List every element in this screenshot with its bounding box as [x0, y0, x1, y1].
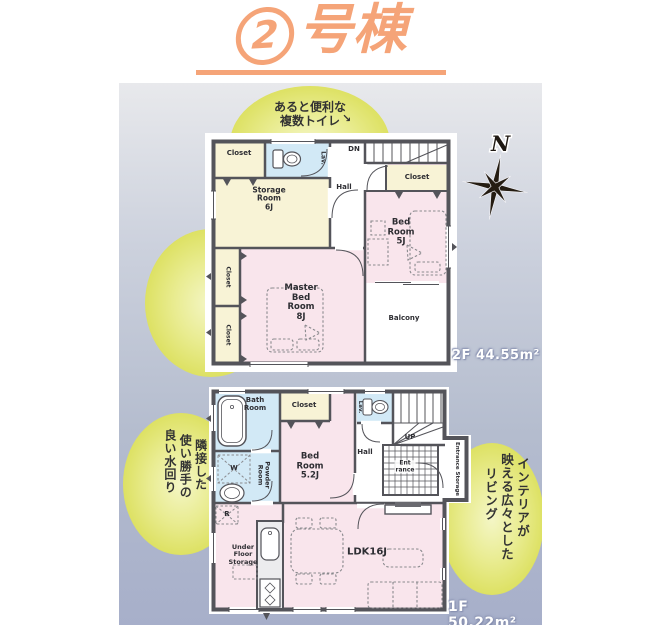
- callout-arrow-icon: ↘: [342, 112, 351, 125]
- flyer-canvas: 2号棟 あると便利な 複数トイレ ↘ バルコニーに面した 明るい洋室 キッチンに…: [0, 0, 671, 641]
- room-label-bedroom-5j: Bed Room 5J: [387, 219, 414, 248]
- room-label-hall: Hall: [336, 184, 351, 192]
- callout-living-text: インテリアが 映える広々とした リビング: [482, 453, 530, 561]
- floor1-plan-drawing: [205, 383, 475, 625]
- room-label-storage: Storage Room 6J: [252, 186, 285, 211]
- toilet-1f-icon: [363, 399, 388, 415]
- kitchen-counter-icon: [257, 521, 283, 609]
- room-label-dn: DN: [348, 146, 360, 154]
- room-label-closet: Closet: [405, 174, 430, 182]
- page-title: 2号棟: [196, 2, 446, 75]
- room-label-entrance-storage: Entrance Storage: [454, 442, 460, 496]
- room-label-lav: Lav.: [319, 151, 326, 165]
- room-label-bedroom-52j: Bed Room 5.2J: [296, 453, 323, 482]
- bathtub-icon: [218, 396, 246, 446]
- callout-line2: 複数トイレ: [230, 115, 390, 129]
- floor2-plan-drawing: [205, 133, 457, 372]
- title-circled-number: 2: [234, 5, 295, 66]
- room-label-ldk: LDK16J: [347, 546, 387, 557]
- background-panel: あると便利な 複数トイレ ↘ バルコニーに面した 明るい洋室 キッチンに 隣接し…: [119, 83, 542, 625]
- compass-star-icon: N: [461, 129, 531, 229]
- room-label-closet: Closet: [227, 150, 252, 158]
- room-label-fridge: R: [224, 511, 229, 519]
- compass: N: [461, 129, 531, 229]
- floor2-area-label: 2F 44.55m²: [452, 348, 540, 363]
- callout-col: 映える広々とした: [498, 453, 514, 561]
- room-label-hall: Hall: [357, 449, 372, 457]
- callout-col: リビング: [482, 453, 498, 561]
- callout-col: 良い水回り: [162, 429, 177, 499]
- powder-sink-icon: [220, 484, 244, 502]
- room-label-master-bedroom: Master Bed Room 8J: [284, 284, 317, 322]
- floor1-area-label: 1F 50.22m²: [448, 599, 542, 625]
- room-label-bath: Bath Room: [244, 397, 266, 413]
- room-label-closet: Closet: [292, 402, 317, 410]
- room-label-washer: W: [230, 465, 238, 473]
- title-suffix: 号棟: [299, 0, 407, 61]
- floor2-plan: Closet Lav. DN Hall Storage Room 6J Clos…: [205, 133, 457, 372]
- room-label-lav: Lav.: [357, 401, 363, 413]
- room-label-under-floor: Under Floor Storage: [229, 544, 258, 566]
- room-label-powder: Powder Room: [256, 461, 271, 489]
- room-label-entrance: Ent rance: [395, 460, 416, 473]
- callout-col: インテリアが: [514, 453, 530, 561]
- callout-col: 使い勝手の: [177, 429, 192, 499]
- callout-line1: あると便利な: [230, 101, 390, 115]
- floor1-plan: Bath Room Closet Bed Room 5.2J Lav. UP H…: [205, 383, 475, 625]
- room-label-closet: Closet: [224, 324, 231, 345]
- room-label-up: UP: [405, 434, 416, 442]
- room-label-closet: Closet: [224, 266, 231, 287]
- room-label-balcony: Balcony: [389, 315, 420, 323]
- compass-n: N: [490, 131, 511, 156]
